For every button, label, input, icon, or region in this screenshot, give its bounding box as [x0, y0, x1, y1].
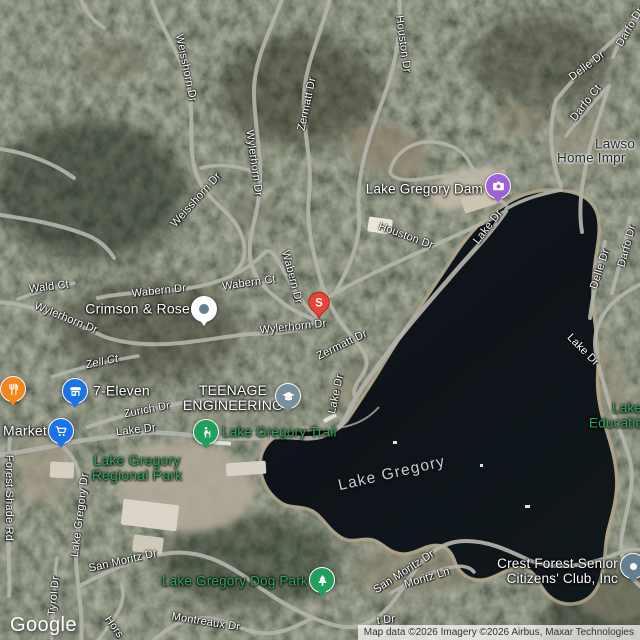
street-label-darfo-ct: Darfo Ct: [568, 83, 604, 124]
lake-gregory-regional-park-label[interactable]: Lake GregoryRegional Park: [92, 453, 183, 483]
street-label-lake-gregory-dr: Lake Gregory Dr: [69, 472, 91, 557]
lake-education-label[interactable]: Lake: [612, 401, 640, 416]
pin-tail: [8, 399, 18, 406]
market-label[interactable]: Market: [3, 424, 47, 439]
market-pin[interactable]: [48, 418, 74, 444]
map-pin-icon: S: [306, 291, 332, 321]
street-label-delle-dr: Delle Dr: [588, 247, 612, 290]
seven-eleven-label[interactable]: 7-Eleven: [93, 384, 150, 399]
seven-eleven-label-line: 7-Eleven: [93, 384, 150, 399]
google-logo[interactable]: Google: [10, 614, 77, 637]
poi-ring-icon: [630, 563, 637, 570]
lake-name-label: Lake Gregory: [337, 453, 448, 495]
street-label-lake-dr: Lake Dr: [565, 332, 602, 369]
seven-eleven-pin[interactable]: [62, 378, 88, 404]
street-label-houston-dr: Houston Dr: [377, 221, 435, 252]
lake-gregory-dam-pin[interactable]: [485, 173, 511, 199]
street-label-darfo-dr: Darfo Dr: [616, 224, 639, 269]
teenage-engineering-label-line: TEENAGE: [183, 383, 283, 398]
teenage-engineering-label[interactable]: TEENAGEENGINEERING: [183, 383, 283, 413]
lake-gregory-dam-label[interactable]: Lake Gregory Dam: [366, 182, 483, 197]
crest-forest-senior-citizens-club-label-line: Crest Forest Senior: [497, 556, 618, 571]
tree-icon: [315, 573, 330, 588]
map-canvas[interactable]: Weisshorn DrWeisshorn DrWylerhorn DrZerm…: [0, 0, 640, 640]
pin-tail: [56, 441, 66, 448]
street-label-zermatt-dr: Zermatt Dr: [295, 76, 318, 132]
street-label-wylerhorn-dr: Wylerhorn Dr: [243, 129, 264, 197]
lake-education-label-line: Lake: [612, 401, 640, 416]
lawson-home-improvement-line2-label-line: Home Impr: [557, 151, 626, 166]
school-icon: [281, 389, 296, 404]
market-label-line: Market: [3, 424, 47, 439]
street-label-delle-dr: Delle Dr: [567, 49, 607, 83]
crest-forest-senior-citizens-club-label[interactable]: Crest Forest SeniorCitizens' Club, Inc: [497, 556, 618, 586]
crimson-and-rose-label-line: Crimson & Rose: [85, 302, 190, 317]
teenage-engineering-pin[interactable]: [275, 383, 301, 409]
street-label-weisshorn-dr: Weisshorn Dr: [173, 33, 199, 103]
street-label-lake-dr: Lake Dr: [471, 208, 505, 247]
street-label-montreaux-dr: Montreaux Dr: [171, 611, 241, 634]
restaurant-pin[interactable]: [0, 376, 26, 402]
crimson-and-rose-label[interactable]: Crimson & Rose: [85, 302, 190, 317]
street-label-zermatt-dr: Zermatt Dr: [315, 328, 369, 363]
trail-icon: [199, 425, 214, 440]
crimson-and-rose-pin[interactable]: [191, 296, 217, 322]
street-label-hors: Hors: [102, 614, 126, 640]
street-label-wald-ct: Wald Ct: [28, 279, 69, 296]
street-label-lake-dr: Lake Dr: [326, 373, 346, 415]
cart-icon: [54, 424, 69, 439]
pin-tail: [201, 442, 211, 449]
restaurant-icon: [6, 382, 21, 397]
pin-tail: [493, 196, 503, 203]
street-label-tyrol-dr: Tyrol Dr: [46, 575, 62, 616]
street-label-houston-dr: Houston Dr: [393, 15, 413, 74]
lawson-home-improvement-label-line: Lawso: [595, 137, 635, 152]
street-label-weisshorn-dr: Weisshorn Dr: [169, 170, 224, 229]
selected-place-marker[interactable]: S: [306, 291, 332, 321]
svg-text:S: S: [315, 298, 323, 310]
store-icon: [68, 384, 83, 399]
poi-dot-icon: [199, 304, 209, 314]
crest-forest-senior-citizens-club-label-line: Citizens' Club, Inc: [497, 571, 618, 586]
street-label-wabern-ct: Wabern Ct: [221, 273, 276, 292]
teenage-engineering-label-line: ENGINEERING: [183, 398, 283, 413]
street-label-lake-dr: Lake Dr: [115, 422, 156, 439]
lake-education-line2-label-line: Educatio: [589, 416, 640, 431]
pin-tail: [628, 576, 638, 583]
street-label-darfo-dr: Darfo Dr: [614, 5, 640, 48]
map-label-layer: Weisshorn DrWeisshorn DrWylerhorn DrZerm…: [0, 0, 640, 640]
lake-gregory-regional-park-label-line: Regional Park: [92, 468, 183, 483]
street-label-zell-ct: Zell Ct: [86, 352, 119, 371]
camera-icon: [491, 179, 506, 194]
lake-gregory-trail-pin[interactable]: [193, 419, 219, 445]
lake-gregory-dam-label-line: Lake Gregory Dam: [366, 182, 483, 197]
pin-tail: [283, 406, 293, 413]
map-attribution: Map data ©2026 Imagery ©2026 Airbus, Max…: [358, 625, 640, 640]
lake-education-line2-label[interactable]: Educatio: [589, 416, 640, 431]
pin-tail: [199, 319, 209, 326]
lake-gregory-dog-park-label[interactable]: Lake Gregory Dog Park: [162, 574, 308, 589]
street-label-san-moritz-dr: San Moritz Dr: [88, 547, 159, 574]
pin-tail: [70, 401, 80, 408]
lake-gregory-dog-park-label-line: Lake Gregory Dog Park: [162, 574, 308, 589]
street-label-wabern-dr: Wabern Dr: [279, 249, 305, 305]
lake-gregory-trail-label-line: Lake Gregory Trail: [222, 425, 337, 440]
lawson-home-improvement-label[interactable]: Lawso: [595, 137, 635, 152]
lake-gregory-dog-park-pin[interactable]: [309, 567, 335, 593]
lake-gregory-trail-label[interactable]: Lake Gregory Trail: [222, 425, 337, 440]
lawson-home-improvement-line2-label[interactable]: Home Impr: [557, 151, 626, 166]
lake-gregory-regional-park-label-line: Lake Gregory: [92, 453, 183, 468]
street-label-zurich-dr: Zurich Dr: [123, 400, 171, 421]
street-label-forest-shade-rd: Forest Shade Rd: [3, 455, 15, 541]
street-label-wabern-dr: Wabern Dr: [131, 282, 187, 300]
crest-forest-senior-citizens-club-pin[interactable]: [620, 553, 640, 579]
pin-tail: [317, 590, 327, 597]
